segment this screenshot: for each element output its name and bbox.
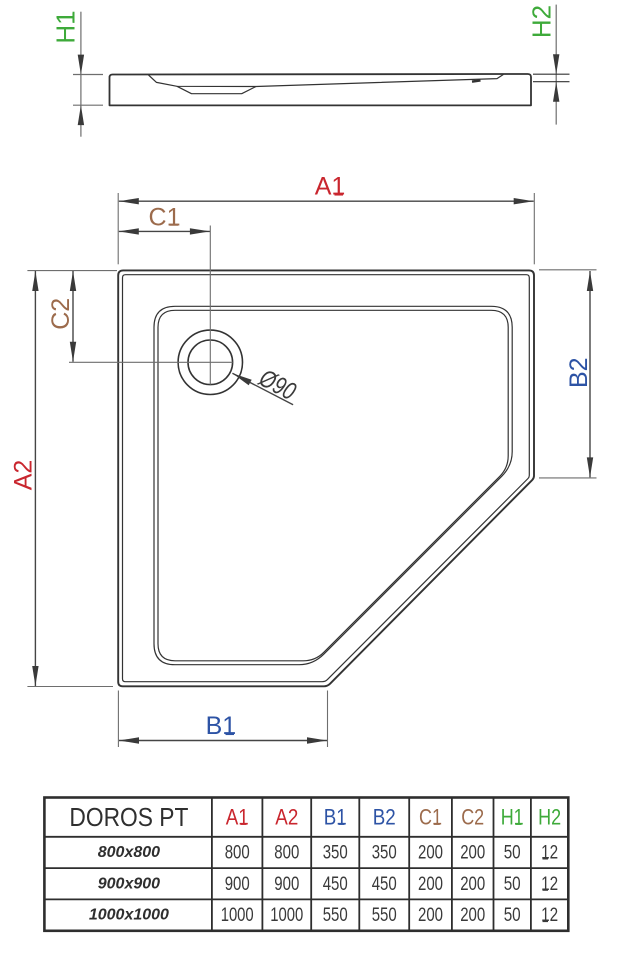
svg-text:H1: H1	[51, 10, 81, 43]
svg-text:200: 200	[460, 904, 485, 926]
svg-text:900x900: 900x900	[98, 875, 160, 892]
svg-text:H2: H2	[527, 5, 557, 38]
svg-text:B2: B2	[565, 357, 593, 388]
svg-text:A2: A2	[9, 460, 37, 491]
svg-text:450: 450	[323, 873, 348, 895]
svg-text:800x800: 800x800	[98, 844, 160, 861]
svg-text:C2: C2	[461, 805, 484, 830]
svg-text:12: 12	[541, 904, 558, 926]
svg-text:350: 350	[372, 842, 397, 864]
svg-text:350: 350	[323, 842, 348, 864]
svg-text:A1: A1	[315, 173, 346, 201]
svg-text:DOROS PT: DOROS PT	[69, 802, 188, 832]
svg-text:200: 200	[418, 842, 443, 864]
svg-text:C2: C2	[47, 298, 75, 330]
svg-text:50: 50	[504, 873, 521, 895]
svg-text:800: 800	[274, 842, 299, 864]
svg-text:200: 200	[460, 873, 485, 895]
svg-text:550: 550	[323, 904, 348, 926]
svg-text:1000: 1000	[270, 904, 303, 926]
svg-text:550: 550	[372, 904, 397, 926]
svg-text:H1: H1	[501, 805, 524, 830]
svg-text:50: 50	[504, 904, 521, 926]
svg-text:C1: C1	[149, 204, 181, 232]
svg-text:A2: A2	[275, 805, 298, 830]
svg-text:1000: 1000	[221, 904, 254, 926]
svg-text:900: 900	[225, 873, 250, 895]
svg-text:50: 50	[504, 842, 521, 864]
svg-text:B1: B1	[206, 712, 237, 740]
svg-text:200: 200	[460, 842, 485, 864]
svg-text:1000x1000: 1000x1000	[89, 907, 169, 924]
svg-text:900: 900	[274, 873, 299, 895]
svg-text:B1: B1	[324, 805, 347, 830]
svg-text:B2: B2	[373, 805, 396, 830]
svg-text:A1: A1	[226, 805, 249, 830]
svg-text:C1: C1	[419, 805, 442, 830]
svg-text:200: 200	[418, 904, 443, 926]
svg-text:H2: H2	[538, 805, 561, 830]
svg-text:12: 12	[541, 873, 558, 895]
svg-text:800: 800	[225, 842, 250, 864]
svg-text:12: 12	[541, 842, 558, 864]
svg-text:200: 200	[418, 873, 443, 895]
svg-text:450: 450	[372, 873, 397, 895]
